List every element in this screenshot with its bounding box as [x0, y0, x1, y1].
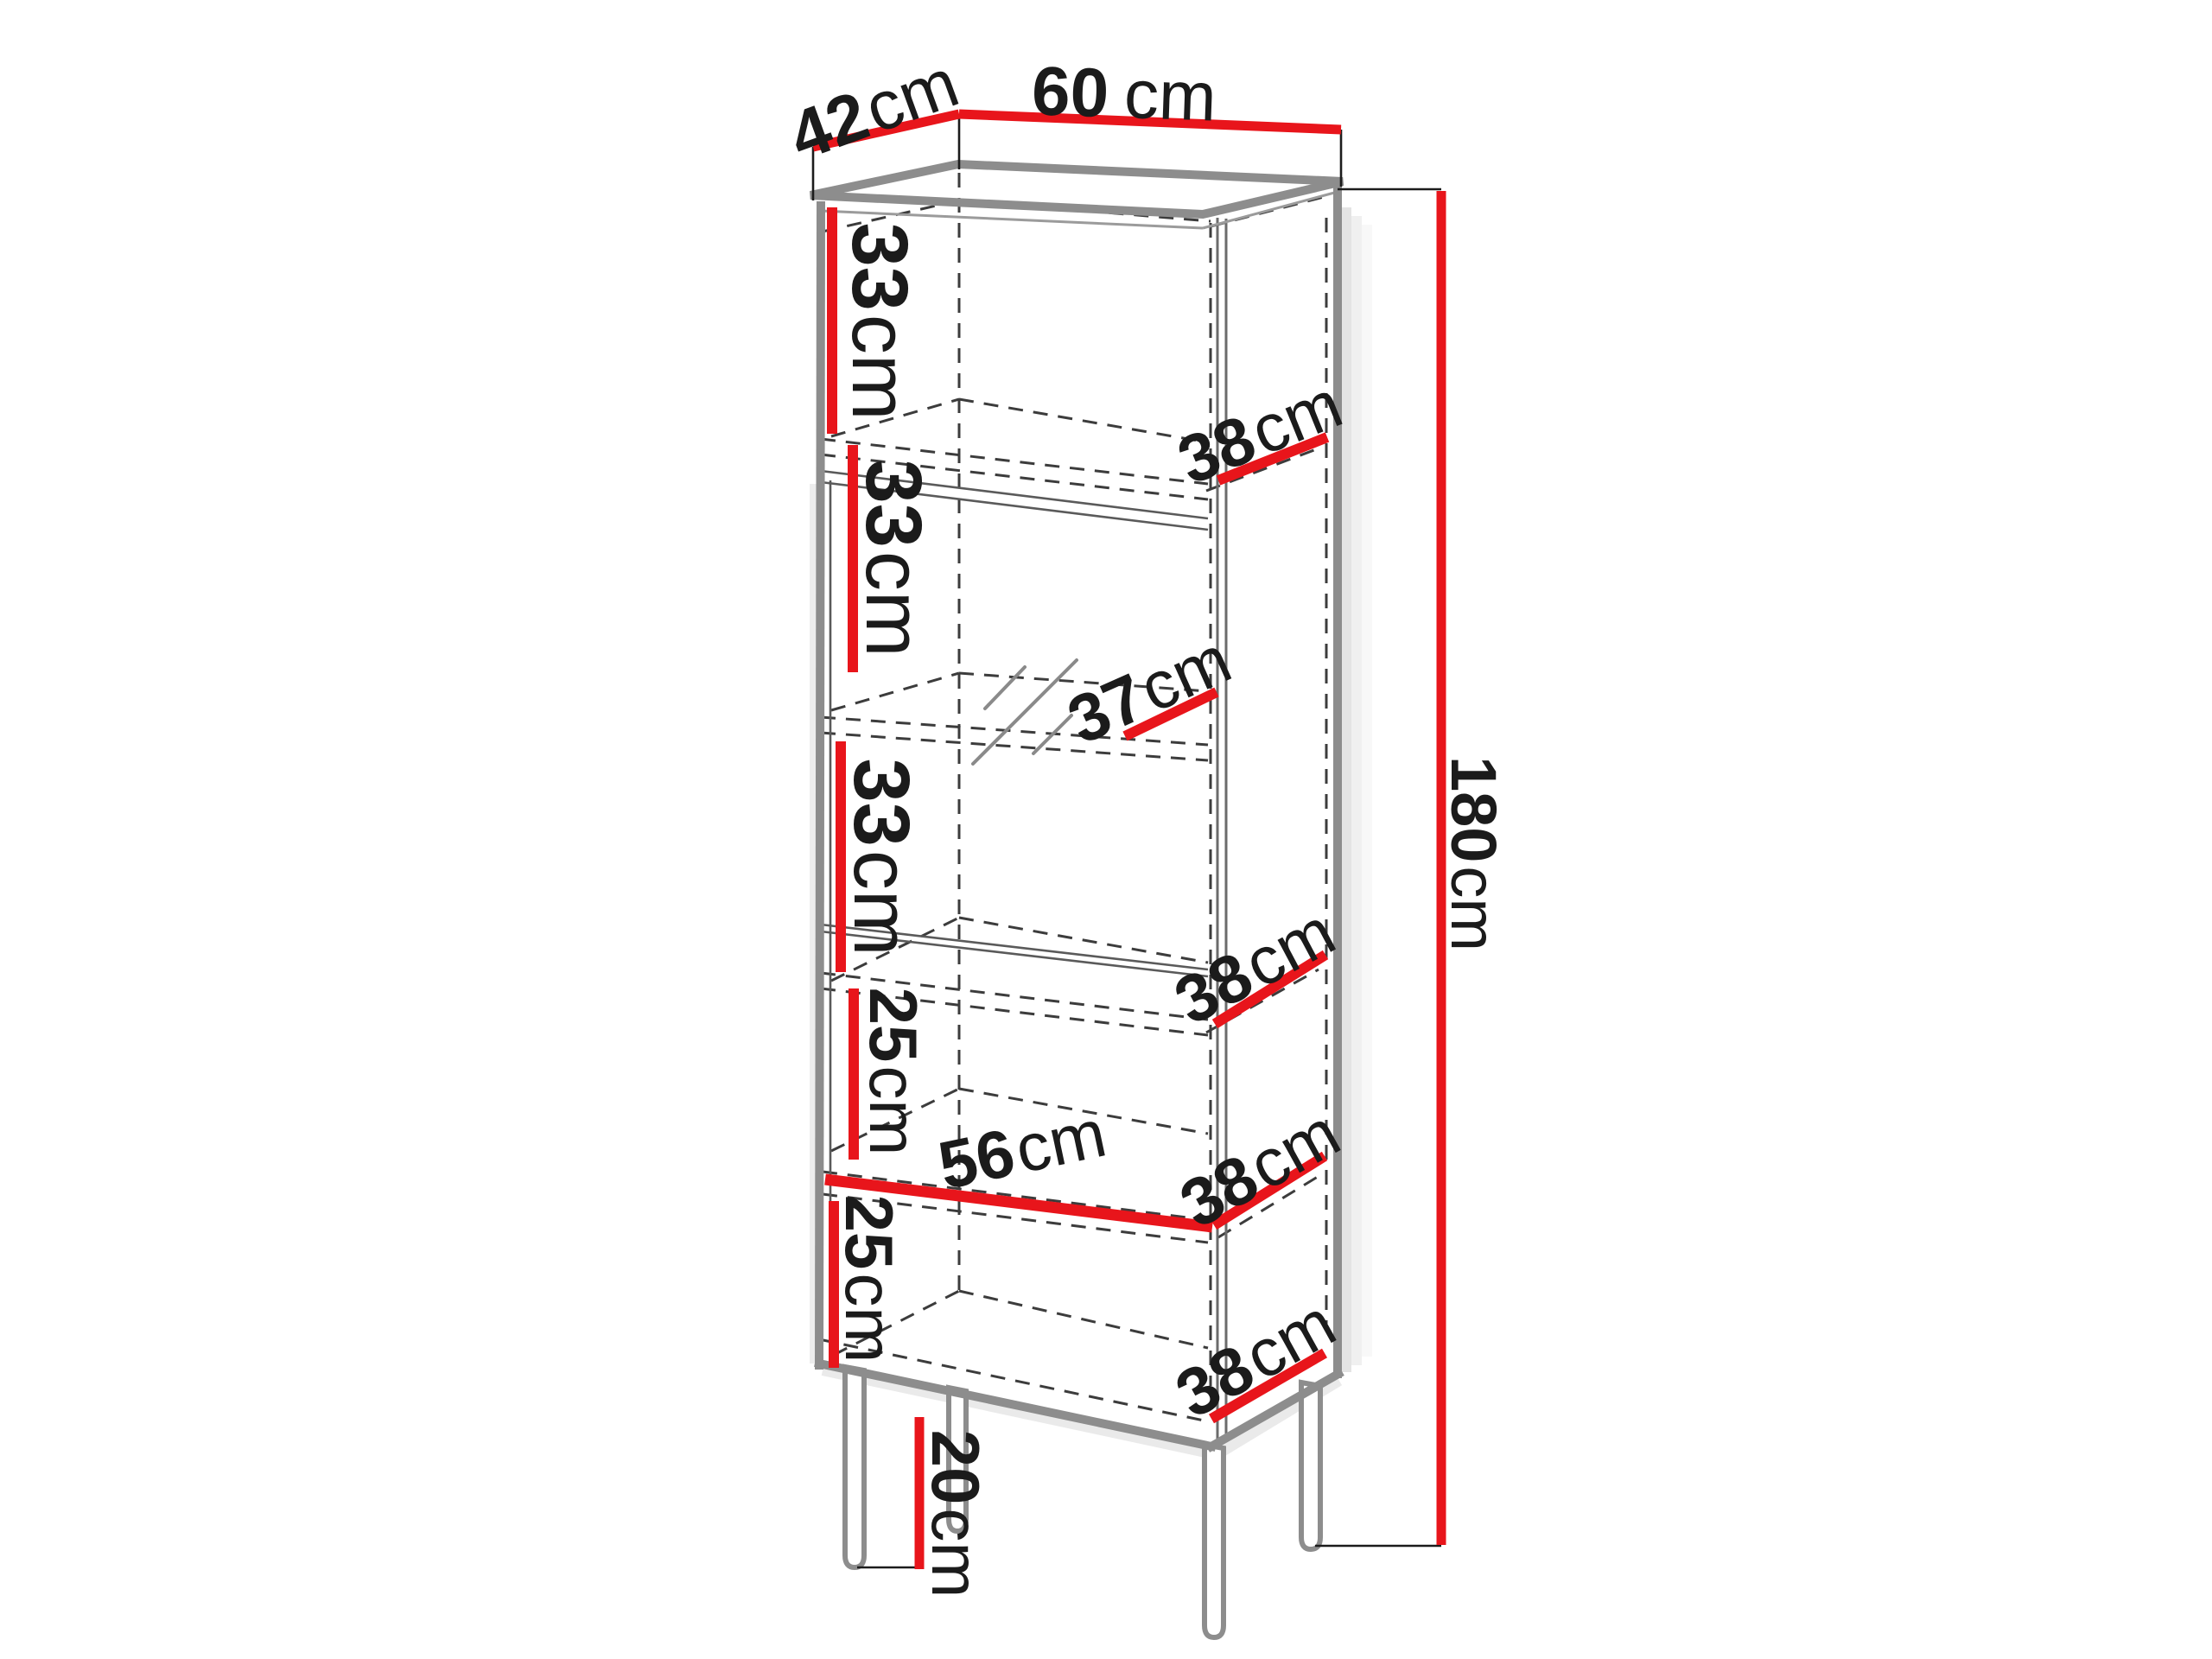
dim-label-section-3-height: 33cm — [837, 759, 925, 957]
dim-label-section-1-height: 33cm — [836, 223, 924, 421]
dim-label-section-5-height: 25cm — [831, 1195, 907, 1363]
dim-label-leg-height: 20cm — [918, 1430, 994, 1599]
dim-label-height: 180cm — [1439, 756, 1510, 951]
dim-label-section-4-height: 25cm — [855, 988, 931, 1156]
dim-label-top-width: 60cm — [1031, 52, 1218, 135]
leg-front-right — [1205, 1445, 1224, 1637]
dim-label-top-depth: 42cm — [779, 43, 968, 175]
leg-front-left — [845, 1367, 864, 1567]
left-edge — [819, 206, 821, 1365]
leg-back-right — [1301, 1382, 1320, 1549]
cabinet-dimension-diagram: 42cm 60cm 180cm 33cm 33cm 33cm 25cm 25cm… — [0, 0, 2212, 1659]
dim-label-section-2-height: 33cm — [849, 460, 938, 658]
page-background: 42cm 60cm 180cm 33cm 33cm 33cm 25cm 25cm… — [0, 0, 2212, 1659]
